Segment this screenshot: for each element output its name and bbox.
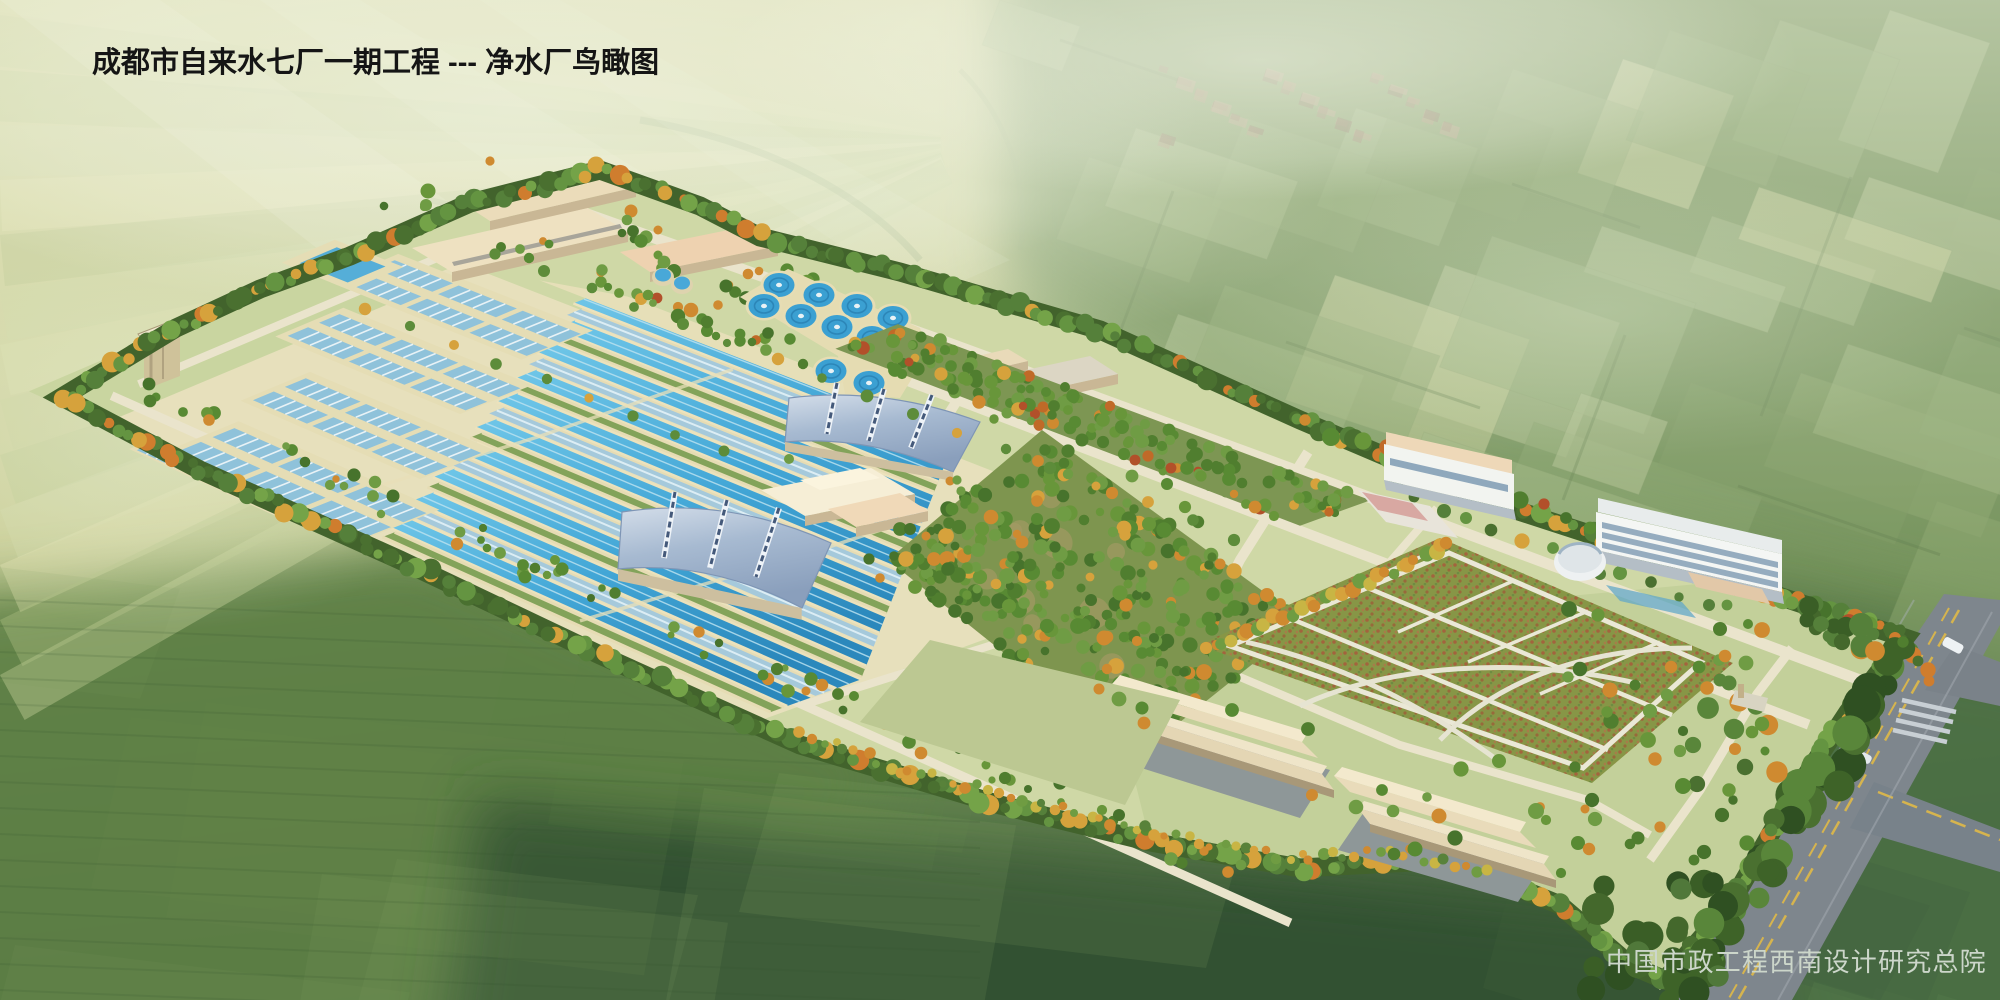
svg-text:中国市政工程西南设计研究总院: 中国市政工程西南设计研究总院 (1606, 947, 1987, 977)
svg-text:成都市自来水七厂一期工程 --- 净水厂鸟瞰图: 成都市自来水七厂一期工程 --- 净水厂鸟瞰图 (92, 45, 659, 79)
